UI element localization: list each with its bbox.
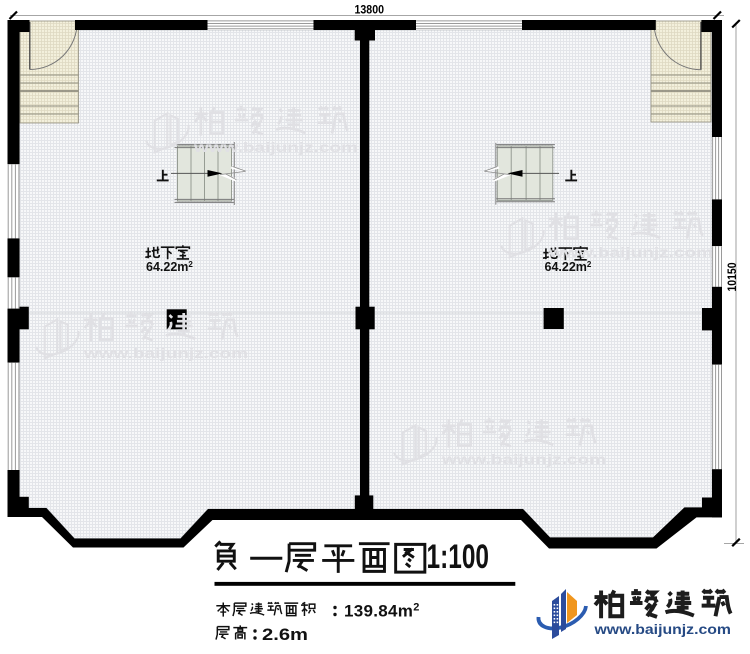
- svg-text:13800: 13800: [355, 5, 385, 17]
- svg-text:64.22m2: 64.22m2: [146, 260, 193, 274]
- svg-text:1:100: 1:100: [427, 538, 490, 576]
- svg-text:64.22m2: 64.22m2: [545, 260, 592, 274]
- svg-text:2.6m: 2.6m: [262, 625, 308, 644]
- svg-text:www.baijunjz.com: www.baijunjz.com: [593, 621, 731, 637]
- svg-text:10150: 10150: [727, 263, 739, 292]
- svg-text:139.84m2: 139.84m2: [344, 602, 420, 621]
